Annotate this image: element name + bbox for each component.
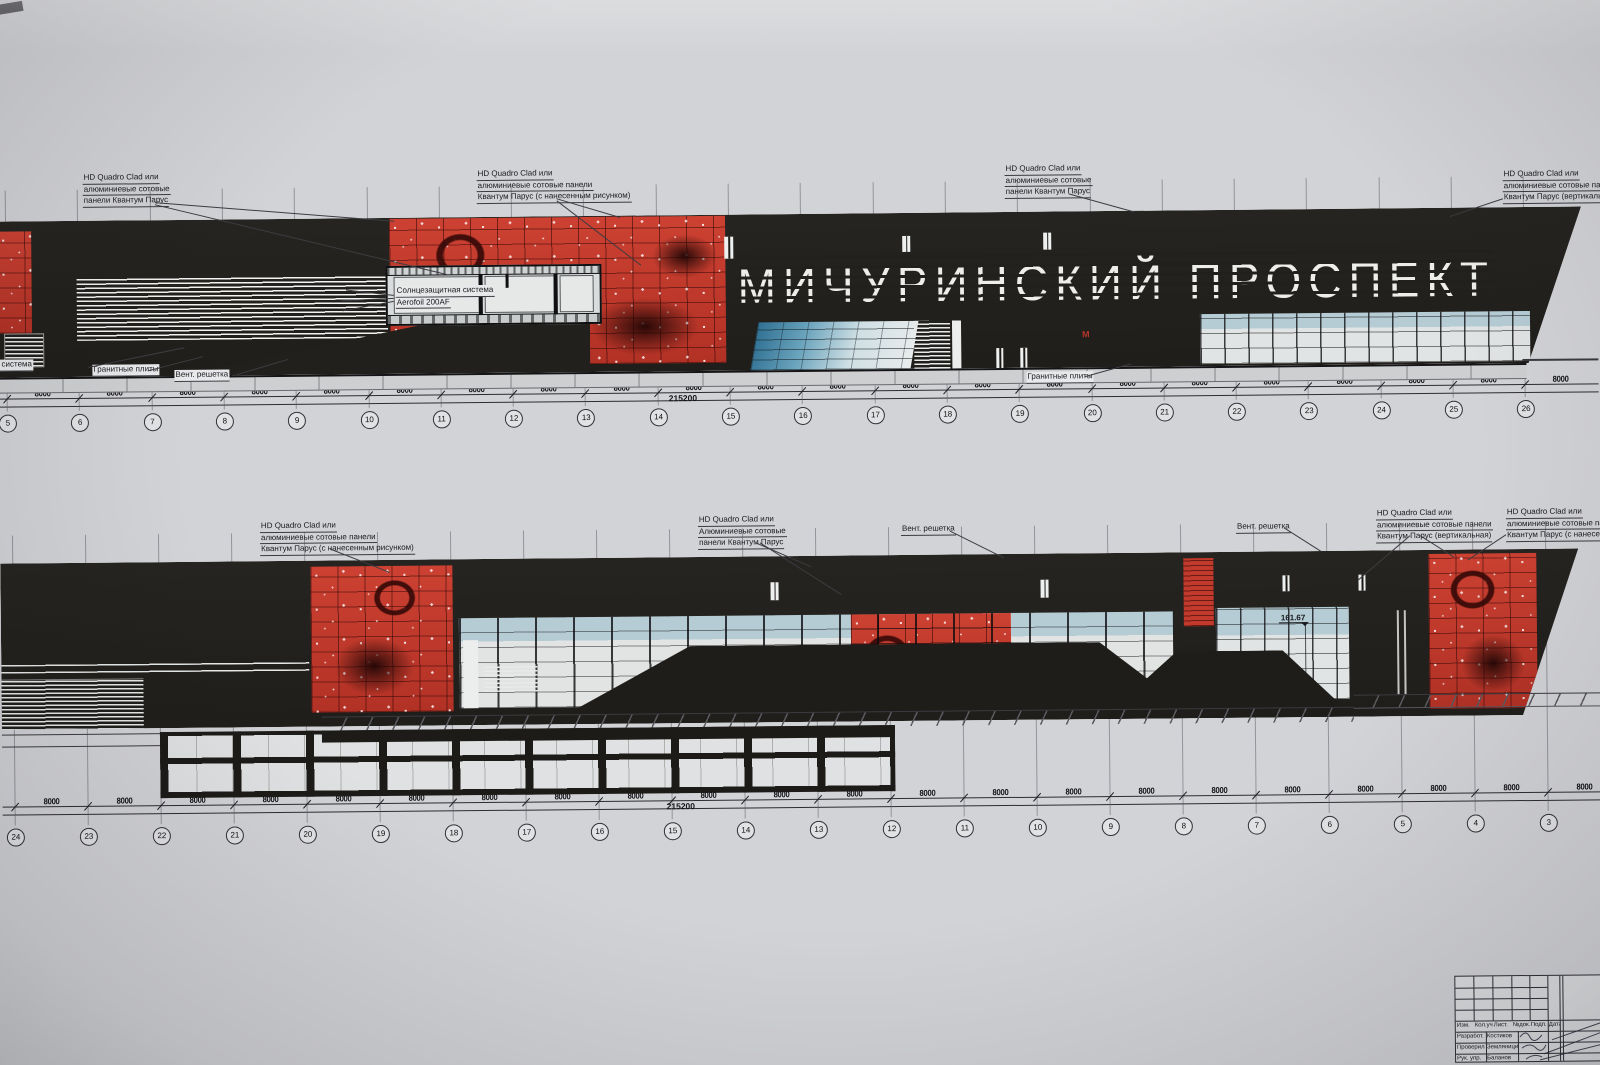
red-vertical-strip (1183, 558, 1214, 626)
grid-axis-bubble: 14 (737, 821, 755, 839)
drawing-sheet: 5800068000780008800098000108000118000128… (0, 0, 1600, 1065)
apple-art (1442, 563, 1502, 616)
louver-panel (914, 321, 950, 369)
bay-dimension-label: 8000 (1057, 786, 1089, 796)
annotation-vent: Вент. решетка (901, 524, 956, 536)
glass-bay (485, 275, 555, 313)
grid-axis-bubble: 7 (1248, 817, 1266, 835)
grid-axis-bubble: 19 (372, 825, 390, 843)
grid-axis-bubble: 8 (1175, 817, 1193, 835)
bay-dimension-label: 8000 (108, 795, 140, 805)
mullion (506, 274, 509, 288)
louver-panel (1, 678, 143, 730)
bay-dimension-label: 8000 (1203, 785, 1235, 795)
red-panel-artwork (1428, 553, 1537, 709)
dark-art-blob (319, 626, 430, 707)
panel-joint (1397, 610, 1399, 694)
window-slit (1040, 580, 1048, 598)
panel-joint (1404, 610, 1406, 694)
overall-dimension-line (3, 799, 1600, 815)
annotation-sun-system-left: Солнцезащитная системаAerofoil 200AF (0, 359, 33, 383)
dark-art-blob (639, 226, 730, 287)
bay-dimension-label: 8000 (911, 788, 943, 798)
apple-art (366, 574, 422, 623)
grid-axis-bubble: 10 (1029, 819, 1047, 837)
sign-stencil-stripes (737, 247, 1494, 316)
facade-band-top: Солнцезащитная система Aerofoil 200AF МИ… (0, 206, 1582, 377)
red-panel-artwork (310, 565, 453, 712)
bay-dimension-label: 8000 (1349, 783, 1381, 793)
light-strip (1, 661, 309, 667)
annotation-sun-system: Солнцезащитная система Aerofoil 200AF (396, 285, 495, 309)
grid-axis-bubble: 24 (7, 828, 25, 846)
sakura-dots (0, 231, 32, 333)
annotation-vent: Вент. решетка (174, 369, 229, 381)
sunshade-louvers (77, 274, 389, 341)
grid-axis-bubble: 12 (883, 820, 901, 838)
annotation-cladding-pattern: HD Quadro Clad илиалюминиевые сотовые па… (1506, 506, 1600, 542)
grid-axis-bubble: 4 (1467, 814, 1485, 832)
bay-dimension-label: 8000 (1130, 786, 1162, 796)
window-slit (1282, 575, 1289, 591)
axis-bottom: 2480002380002280002180002080001980001880… (0, 0, 1600, 1065)
title-block: Изм. Кол.уч. Лист. №док. Подп. Дата Разр… (1454, 974, 1600, 1062)
grid-axis-bubble: 9 (1102, 818, 1120, 836)
grid-axis-bubble: 20 (299, 826, 317, 844)
light-strip (1, 669, 309, 674)
level-mark: 161.67 (1279, 613, 1308, 622)
glass-bay (560, 275, 594, 312)
annotation-cladding-pattern: HD Quadro Clad илиалюминиевые сотовые па… (476, 168, 631, 204)
storefront-rail (388, 313, 600, 324)
grid-axis-bubble: 18 (445, 824, 463, 842)
grid-axis-bubble: 5 (1394, 815, 1412, 833)
signatures (1455, 975, 1600, 1061)
grid-axis-bubble: 13 (810, 821, 828, 839)
total-dimension-label: 215200 (667, 801, 695, 811)
dark-art-blob (1449, 623, 1538, 704)
bay-dimension-label: 8000 (35, 796, 67, 806)
mullion (554, 273, 558, 314)
annotation-cladding-vertical: HD Quadro Clad илиалюминиевые сотовые па… (1376, 507, 1493, 543)
ground-hatch (1354, 692, 1600, 708)
bay-dimension-label: 8000 (1495, 782, 1527, 792)
annotation-cladding: HD Quadro Clad илиАлюминиевые сотовыепан… (698, 514, 787, 549)
annotation-cladding-vertical: HD Quadro Clad илиалюминиевые сотовые па… (1503, 168, 1600, 204)
glass-curtain-wall (1200, 311, 1530, 364)
photo-of-drawing: 5800068000780008800098000108000118000128… (0, 0, 1600, 1065)
grid-axis-bubble: 16 (591, 823, 609, 841)
bay-dimension-label: 8000 (1422, 783, 1454, 793)
metro-logo: М (1082, 329, 1090, 339)
window-slit (1043, 233, 1051, 250)
grid-axis-bubble: 21 (226, 826, 244, 844)
red-panel (0, 231, 32, 333)
grid-axis-bubble: 22 (153, 827, 171, 845)
facade-band-bottom: 161.67 (0, 549, 1580, 730)
louver-panel (483, 664, 537, 693)
bay-dimension-label: 8000 (984, 787, 1016, 797)
entrance-glazing (750, 321, 918, 374)
window-slit (770, 582, 778, 600)
grid-axis-bubble: 23 (80, 828, 98, 846)
grid-axis-bubble: 15 (664, 822, 682, 840)
annotation-granite: Гранитные плиты (1026, 371, 1093, 383)
white-column (952, 320, 961, 368)
bay-dimension-label: 8000 (1568, 781, 1600, 791)
door-slit (996, 348, 1003, 368)
white-column (463, 640, 479, 708)
annotation-cladding: HD Quadro Clad илиалюминиевые сотовыепан… (1004, 163, 1092, 198)
door-slit (1020, 348, 1027, 368)
grid-axis-bubble: 17 (518, 824, 536, 842)
grid-axis-bubble: 6 (1321, 816, 1339, 834)
bay-dimension-label: 8000 (1276, 784, 1308, 794)
window-slit (724, 237, 733, 259)
annotation-vent: Вент. решетка (1236, 521, 1291, 533)
grid-axis-bubble: 11 (956, 819, 974, 837)
grid-axis-bubble: 3 (1540, 814, 1558, 832)
